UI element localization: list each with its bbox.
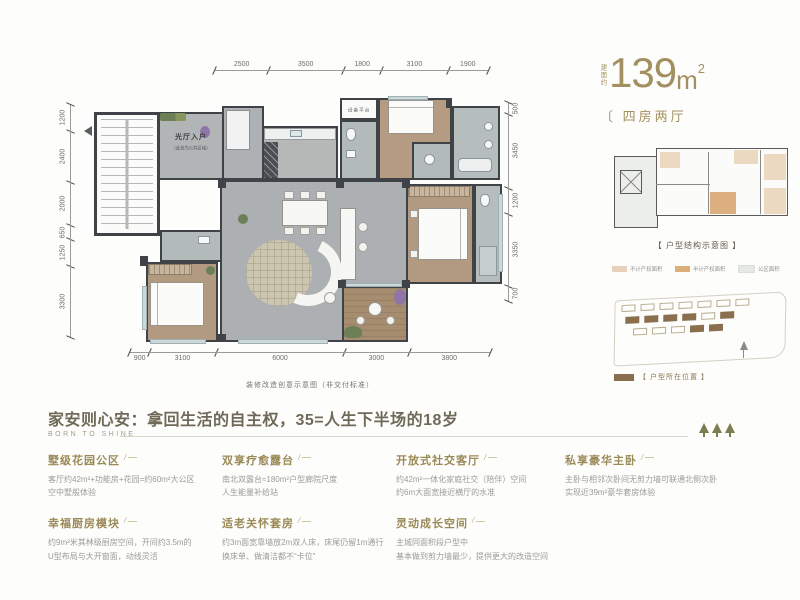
feature-line: 客厅约42m²+功能房+花园=约60m²大公区 — [48, 473, 213, 486]
structure-balcony-area — [710, 192, 736, 214]
dimensions-left: 12002400200065012503300 — [56, 105, 71, 337]
structure-tan-area — [734, 150, 758, 164]
feature-title: 灵动成长空间 — [396, 515, 468, 531]
wall-block — [402, 280, 410, 288]
area-unit: m — [676, 67, 698, 94]
site-legend: 【 户型所在位置 】 — [614, 372, 709, 382]
side-table-icon — [324, 292, 336, 304]
legend-swatch — [612, 266, 627, 272]
equipment-platform-label: 设备平台 — [348, 105, 370, 112]
feature-line: 约3m面宽靠墙放2m双人床，床尾仍留1m通行 — [222, 536, 390, 549]
plant-icon — [206, 266, 215, 275]
structure-wall-line — [708, 152, 709, 214]
building-icon — [640, 303, 654, 311]
legend-swatch — [675, 266, 690, 272]
structure-diagram — [612, 144, 790, 234]
toilet-icon — [480, 194, 490, 207]
feature-line: 主卧与相邻次卧间无剪力墙可联通北侧次卧 — [565, 473, 780, 486]
feature-line: 约9m²米其林级厨房空间，开间约3.5m的 — [48, 536, 213, 549]
window-icon — [498, 194, 503, 272]
feature-block: 灵动成长空间/ 主城同面积段户型中基本做到剪力墙最少，提供更大的改造空间 — [396, 515, 558, 562]
chair-icon — [316, 227, 326, 235]
stool-icon — [358, 222, 368, 232]
wall-block — [402, 178, 410, 188]
legend-label: 公区面积 — [758, 264, 780, 272]
building-highlight-icon — [625, 316, 639, 324]
floor-plan: 设备平台 — [88, 96, 512, 356]
building-highlight-icon — [709, 324, 723, 332]
wall-block — [336, 178, 344, 188]
building-highlight-icon — [663, 314, 677, 322]
wall-block — [140, 256, 148, 266]
building-icon — [652, 327, 666, 335]
slash-decoration-icon: / — [472, 516, 485, 525]
round-sink-icon — [484, 122, 493, 131]
chair-icon — [284, 227, 294, 235]
structure-wall-line — [656, 184, 710, 185]
chair-icon — [386, 316, 395, 325]
structure-tan-area — [660, 152, 680, 168]
room-stairwell — [94, 112, 160, 236]
nightstand-icon — [410, 250, 418, 258]
building-highlight-icon — [644, 315, 658, 323]
wall-block — [218, 178, 226, 188]
feature-column-2: 双享疗愈露台/ 南北双露台≈180m²户型廊院尺度人生能量补给站 适老关怀套房/… — [222, 452, 390, 579]
entry-arrow-icon — [84, 126, 92, 136]
window-icon — [238, 339, 328, 344]
structure-elevator — [620, 170, 642, 194]
area-number: 139 — [609, 52, 676, 94]
sink-icon — [290, 130, 302, 137]
cabinet-icon — [226, 110, 250, 150]
area-header: 建面约 139 m 2 — [597, 52, 705, 94]
structure-wall-line — [760, 150, 761, 214]
tree-icon — [711, 423, 723, 438]
divider-line — [120, 436, 688, 437]
feature-title: 双享疗愈露台 — [222, 452, 294, 468]
feature-block: 适老关怀套房/ 约3m面宽靠墙放2m双人床，床尾仍留1m通行换床单、做清洁都不“… — [222, 515, 390, 562]
building-icon — [633, 328, 647, 336]
feature-title: 墅级花园公区 — [48, 452, 120, 468]
bed-icon — [388, 100, 434, 134]
wardrobe-icon — [408, 186, 470, 197]
building-icon — [621, 304, 635, 312]
building-icon — [735, 298, 749, 306]
shower-icon — [479, 246, 497, 276]
dimensions-top: 25003500180031001900 — [215, 56, 488, 71]
building-icon — [697, 300, 711, 308]
round-sink-icon — [424, 154, 435, 165]
slash-decoration-icon: / — [641, 453, 654, 462]
slash-decoration-icon: / — [298, 516, 311, 525]
site-plan — [614, 291, 787, 366]
structure-tan-area — [764, 154, 786, 180]
feature-line: 约6m大面宽接近横厅的水准 — [396, 486, 558, 499]
wardrobe-icon — [148, 264, 192, 275]
plant-icon — [344, 326, 362, 338]
sink-icon — [346, 150, 356, 158]
chair-icon — [300, 191, 310, 199]
feature-line: 主城同面积段户型中 — [396, 536, 558, 549]
room-bathroom-south — [160, 230, 222, 262]
area-superscript: 2 — [698, 61, 705, 76]
site-caption: 【 户型所在位置 】 — [639, 372, 709, 382]
chair-icon — [356, 316, 365, 325]
feature-line: 基本做到剪力墙最少，提供更大的改造空间 — [396, 550, 558, 563]
wall-block — [446, 98, 452, 108]
bed-icon — [150, 282, 204, 326]
bed-icon — [418, 208, 468, 260]
building-icon — [716, 299, 730, 307]
north-arrow-icon — [737, 341, 747, 359]
legend-swatch — [738, 265, 755, 273]
wall-block — [338, 280, 346, 288]
feature-block: 双享疗愈露台/ 南北双露台≈180m²户型廊院尺度人生能量补给站 — [222, 452, 390, 499]
legend-item: 公区面积 — [738, 264, 782, 273]
entry-hall-label: 光厅入户 （此处为公共区域） — [158, 132, 224, 152]
site-highlight-swatch — [614, 374, 634, 381]
building-icon — [659, 302, 673, 310]
headline: 家安则心安：拿回生活的自主权，35=人生下半场的18岁 — [48, 406, 458, 430]
structure-caption: 【 户型结构示意图 】 — [600, 240, 795, 251]
plant-icon — [160, 113, 186, 121]
feature-line: 实现近39m²豪华套房体验 — [565, 486, 780, 499]
feature-column-3: 开放式社交客厅/ 约42m²一体化家庭社交（陪伴）空间约6m大面宽接近横厅的水准… — [396, 452, 558, 579]
slash-decoration-icon: / — [298, 453, 311, 462]
area-prefix: 建面约 — [597, 64, 607, 87]
plan-caption: 装修改造创意示意图（非交付标准） — [180, 380, 440, 390]
flower-icon — [394, 289, 406, 305]
structure-tan-area — [764, 188, 786, 214]
tree-icon — [724, 423, 736, 438]
nightstand-icon — [410, 210, 418, 218]
equipment-platform: 设备平台 — [340, 98, 378, 120]
window-icon — [150, 339, 206, 344]
feature-title: 适老关怀套房 — [222, 515, 294, 531]
chair-icon — [284, 191, 294, 199]
plant-icon — [238, 214, 248, 224]
building-highlight-icon — [720, 311, 734, 319]
feature-block: 私享豪华主卧/ 主卧与相邻次卧间无剪力墙可联通北侧次卧实现近39m²豪华套房体验 — [565, 452, 780, 499]
feature-line: 人生能量补给站 — [222, 486, 390, 499]
wall-block — [216, 334, 226, 342]
chair-icon — [316, 191, 326, 199]
dining-table-icon — [282, 200, 328, 226]
stairs-icon — [101, 119, 153, 229]
brochure-page: 25003500180031001900 9003100600030003800… — [0, 0, 800, 600]
feature-block: 开放式社交客厅/ 约42m²一体化家庭社交（陪伴）空间约6m大面宽接近横厅的水准 — [396, 452, 558, 499]
entry-hall-note: （此处为公共区域） — [167, 144, 215, 150]
slash-decoration-icon: / — [484, 453, 497, 462]
legend-item: 半计产权面积 — [675, 264, 729, 273]
feature-title: 私享豪华主卧 — [565, 452, 637, 468]
feature-title: 幸福厨房模块 — [48, 515, 120, 531]
structure-legend: 不计产权面积 半计产权面积 公区面积 — [612, 264, 797, 273]
building-icon — [678, 301, 692, 309]
building-highlight-icon — [690, 325, 704, 333]
feature-block: 幸福厨房模块/ 约9m²米其林级厨房空间，开间约3.5m的U型布局与大开窗面，动… — [48, 515, 213, 562]
legend-label: 半计产权面积 — [693, 264, 725, 272]
building-icon — [671, 326, 685, 334]
entry-hall-title: 光厅入户 — [158, 132, 224, 142]
legend-item: 不计产权面积 — [612, 264, 666, 273]
kitchen-island-icon — [340, 208, 356, 280]
window-icon — [344, 283, 402, 287]
feature-line: 南北双露台≈180m²户型廊院尺度 — [222, 473, 390, 486]
slash-decoration-icon: / — [124, 516, 137, 525]
window-icon — [142, 286, 147, 330]
balcony-table-icon — [368, 302, 382, 316]
chair-icon — [300, 227, 310, 235]
unit-type-label: 〔 四房两厅 — [600, 106, 687, 125]
slash-decoration-icon: / — [124, 453, 137, 462]
feature-line: 约42m²一体化家庭社交（陪伴）空间 — [396, 473, 558, 486]
bathtub-icon — [458, 158, 492, 172]
feature-column-4: 私享豪华主卧/ 主卧与相邻次卧间无剪力墙可联通北侧次卧实现近39m²豪华套房体验 — [565, 452, 780, 515]
legend-label: 不计产权面积 — [630, 264, 662, 272]
kitchen-cabinet-hatch — [264, 142, 278, 178]
feature-column-1: 墅级花园公区/ 客厅约42m²+功能房+花园=约60m²大公区空中墅般体验 幸福… — [48, 452, 213, 579]
feature-line: U型布局与大开窗面，动线灵活 — [48, 550, 213, 563]
window-icon — [388, 96, 428, 100]
round-sink-icon — [484, 140, 493, 149]
toilet-icon — [346, 128, 356, 141]
feature-block: 墅级花园公区/ 客厅约42m²+功能房+花园=约60m²大公区空中墅般体验 — [48, 452, 213, 499]
tree-icon — [698, 423, 710, 438]
feature-title: 开放式社交客厅 — [396, 452, 480, 468]
stool-icon — [358, 242, 368, 252]
site-row — [621, 321, 779, 336]
feature-line: 换床单、做清洁都不“卡位” — [222, 550, 390, 563]
sink-icon — [198, 236, 210, 244]
building-highlight-icon — [682, 313, 696, 321]
building-icon — [701, 312, 715, 320]
feature-line: 空中墅般体验 — [48, 486, 213, 499]
